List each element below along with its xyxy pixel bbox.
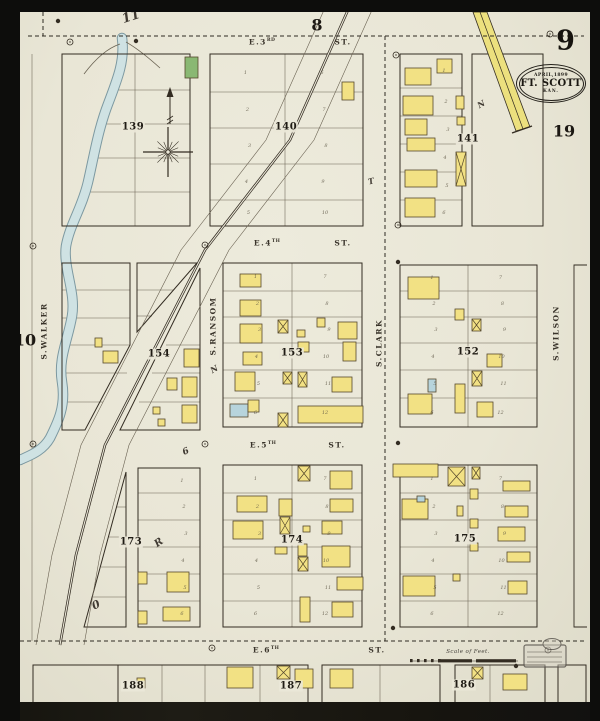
stamp-state: KAN. <box>543 89 559 94</box>
building-footprint <box>248 400 259 412</box>
scale-bar-segment <box>476 659 516 662</box>
outbuilding-crosshatch <box>283 372 292 384</box>
building-rect <box>457 117 465 125</box>
received-stamp-oval <box>543 639 561 650</box>
building-footprint <box>457 506 463 516</box>
building-footprint <box>167 378 177 390</box>
hydrant-dot <box>134 39 138 43</box>
building-rect <box>487 354 502 367</box>
building-footprint <box>297 330 305 337</box>
photo-border-left <box>0 0 20 721</box>
building-footprint <box>405 68 431 85</box>
building-footprint <box>275 547 287 554</box>
building-rect <box>405 119 427 135</box>
building-rect <box>503 674 527 690</box>
block-outline <box>223 263 362 427</box>
building-rect <box>498 527 525 541</box>
building-rect <box>417 496 425 502</box>
building-rect <box>185 57 198 78</box>
map-canvas <box>0 0 600 721</box>
building-footprint <box>503 481 530 491</box>
building-rect <box>167 572 189 592</box>
building-rect <box>455 309 464 320</box>
building-rect <box>470 543 478 551</box>
survey-circle-center <box>395 54 396 55</box>
building-rect <box>505 506 528 517</box>
survey-circle-center <box>549 33 550 34</box>
building-rect <box>408 394 432 414</box>
building-footprint <box>240 324 262 343</box>
building-footprint <box>470 489 478 499</box>
building-footprint <box>233 521 263 539</box>
building-rect <box>403 96 433 115</box>
railroad-band-centerline <box>480 12 523 129</box>
building-footprint <box>230 404 248 417</box>
outbuilding-crosshatch <box>298 466 310 481</box>
building-rect <box>137 678 145 688</box>
building-rect <box>343 342 356 361</box>
building-rect <box>138 572 147 584</box>
building-footprint <box>235 372 255 391</box>
building-footprint <box>137 678 145 688</box>
building-footprint <box>322 546 350 567</box>
building-footprint <box>330 499 353 512</box>
building-footprint <box>455 384 465 413</box>
building-rect <box>300 597 310 622</box>
building-rect <box>330 669 353 688</box>
building-footprint <box>298 544 307 556</box>
building-rect <box>295 669 313 688</box>
building-rect <box>403 576 435 596</box>
survey-circle-center <box>204 443 205 444</box>
building-footprint <box>505 506 528 517</box>
stamp-city: FT. SCOTT <box>520 78 581 90</box>
outbuilding-crosshatch <box>472 667 483 679</box>
compass-rose-icon <box>143 87 193 177</box>
building-footprint <box>300 597 310 622</box>
building-footprint <box>330 669 353 688</box>
building-footprint <box>405 119 427 135</box>
building-rect <box>457 506 463 516</box>
building-rect <box>298 406 363 423</box>
building-footprint <box>182 405 197 423</box>
building-footprint <box>455 309 464 320</box>
block-outline <box>33 665 118 704</box>
outbuilding-crosshatch <box>280 517 290 534</box>
building-footprint <box>437 59 452 73</box>
scale-bar-segment <box>438 659 472 662</box>
outbuilding-crosshatch <box>278 413 288 427</box>
block-outline <box>138 468 200 627</box>
building-rect <box>138 611 147 624</box>
scale-tick <box>410 659 413 662</box>
building-rect <box>298 544 307 556</box>
compass-hub <box>166 150 170 154</box>
outbuilding-crosshatch <box>448 467 465 486</box>
building-footprint <box>342 82 354 100</box>
margin-strip-outline <box>574 265 587 627</box>
building-footprint <box>322 521 342 534</box>
building-rect <box>243 352 262 365</box>
building-rect <box>240 300 261 316</box>
building-rect <box>158 419 165 426</box>
building-footprint <box>158 419 165 426</box>
building-footprint <box>408 277 439 299</box>
building-footprint <box>279 499 292 516</box>
building-footprint <box>182 377 197 397</box>
building-footprint <box>405 170 437 187</box>
building-rect <box>470 489 478 499</box>
building-footprint <box>428 379 436 392</box>
building-rect <box>322 521 342 534</box>
block-outline <box>558 665 586 704</box>
building-rect <box>405 198 435 217</box>
survey-circle-center <box>69 41 70 42</box>
building-footprint <box>167 572 189 592</box>
survey-circle-center <box>32 443 33 444</box>
building-rect <box>455 384 465 413</box>
scale-tick <box>431 659 434 662</box>
ravine-flare-line <box>126 42 160 68</box>
building-rect <box>408 277 439 299</box>
building-rect <box>332 602 353 617</box>
building-footprint <box>508 581 527 594</box>
building-rect <box>182 405 197 423</box>
building-rect <box>332 377 352 392</box>
hydrant-dot <box>396 260 400 264</box>
building-footprint <box>503 674 527 690</box>
outbuilding-crosshatch <box>472 467 480 479</box>
building-rect <box>184 349 199 367</box>
building-footprint <box>138 572 147 584</box>
building-rect <box>240 324 262 343</box>
survey-circle-center <box>397 224 398 225</box>
building-footprint <box>498 527 525 541</box>
building-rect <box>330 471 352 489</box>
received-stamp-box <box>524 645 566 667</box>
building-footprint <box>453 574 460 581</box>
building-footprint <box>403 96 433 115</box>
building-rect <box>297 330 305 337</box>
building-footprint <box>184 349 199 367</box>
stamp-date: APRIL,1899 <box>534 73 568 78</box>
building-footprint <box>337 577 363 590</box>
building-footprint <box>237 496 267 512</box>
building-rect <box>437 59 452 73</box>
scale-bar <box>410 659 518 662</box>
building-footprint <box>470 543 478 551</box>
building-rect <box>470 519 478 528</box>
survey-circle-center <box>32 245 33 246</box>
building-footprint <box>332 602 353 617</box>
building-footprint <box>487 354 502 367</box>
outbuilding-crosshatch <box>277 666 290 679</box>
building-footprint <box>408 394 432 414</box>
building-rect <box>507 552 530 562</box>
scale-tick <box>417 659 420 662</box>
building-rect <box>453 574 460 581</box>
building-footprint <box>185 57 198 78</box>
building-rect <box>275 547 287 554</box>
building-rect <box>153 407 160 414</box>
building-footprint <box>477 402 493 417</box>
building-footprint <box>405 198 435 217</box>
outbuilding-crosshatch <box>456 152 466 186</box>
building-footprint <box>295 669 313 688</box>
building-rect <box>338 322 357 339</box>
scale-tick <box>424 659 427 662</box>
building-footprint <box>338 322 357 339</box>
creek-water <box>20 38 123 460</box>
hydrant-dot <box>514 664 518 668</box>
outbuilding-crosshatch <box>298 557 308 571</box>
building-footprint <box>403 576 435 596</box>
ft-scott-oval-stamp: APRIL,1899 FT. SCOTT KAN. <box>516 64 586 103</box>
building-rect <box>163 607 190 621</box>
building-footprint <box>343 342 356 361</box>
building-footprint <box>507 552 530 562</box>
building-footprint <box>243 352 262 365</box>
building-footprint <box>393 464 438 477</box>
building-rect <box>456 96 464 109</box>
outbuilding-crosshatch <box>298 372 307 387</box>
building-footprint <box>95 338 102 347</box>
building-rect <box>330 499 353 512</box>
outbuilding-crosshatch <box>472 319 481 331</box>
building-rect <box>235 372 255 391</box>
building-footprint <box>317 318 325 327</box>
building-rect <box>342 82 354 100</box>
building-rect <box>405 68 431 85</box>
building-footprint <box>303 526 310 532</box>
building-footprint <box>332 377 352 392</box>
building-rect <box>230 404 248 417</box>
block-outline <box>455 665 545 704</box>
survey-circle-center <box>211 647 212 648</box>
building-rect <box>337 577 363 590</box>
building-rect <box>477 402 493 417</box>
survey-circle-center <box>204 244 205 245</box>
building-footprint <box>298 342 309 352</box>
building-rect <box>167 378 177 390</box>
building-footprint <box>163 607 190 621</box>
building-rect <box>322 546 350 567</box>
hydrant-dot <box>396 441 400 445</box>
building-rect <box>393 464 438 477</box>
building-rect <box>303 526 310 532</box>
building-rect <box>237 496 267 512</box>
north-arrow-head <box>167 87 174 97</box>
building-footprint <box>330 471 352 489</box>
building-footprint <box>457 117 465 125</box>
building-rect <box>407 138 435 151</box>
building-footprint <box>456 96 464 109</box>
building-footprint <box>240 300 261 316</box>
building-rect <box>233 521 263 539</box>
building-rect <box>508 581 527 594</box>
hydrant-dot <box>391 626 395 630</box>
building-rect <box>428 379 436 392</box>
building-footprint <box>298 406 363 423</box>
photo-border-right <box>590 0 600 721</box>
sanborn-map-sheet: 9 8 19 10 Scale of Feet. 123456789101234… <box>0 0 600 721</box>
photo-border-top <box>0 0 600 12</box>
received-stamp <box>524 639 566 668</box>
building-rect <box>317 318 325 327</box>
building-footprint <box>103 351 118 363</box>
building-footprint <box>138 611 147 624</box>
photo-border-bottom <box>0 702 600 721</box>
building-rect <box>95 338 102 347</box>
building-rect <box>182 377 197 397</box>
building-footprint <box>227 667 253 688</box>
building-rect <box>103 351 118 363</box>
outbuilding-crosshatch <box>472 371 482 386</box>
building-rect <box>227 667 253 688</box>
building-footprint <box>240 274 261 287</box>
building-rect <box>298 342 309 352</box>
building-footprint <box>417 496 425 502</box>
hydrant-dot <box>56 19 60 23</box>
building-rect <box>248 400 259 412</box>
creek <box>20 38 160 460</box>
building-rect <box>503 481 530 491</box>
building-footprint <box>470 519 478 528</box>
building-rect <box>240 274 261 287</box>
outbuilding-crosshatch <box>278 320 288 333</box>
building-footprint <box>153 407 160 414</box>
building-rect <box>279 499 292 516</box>
building-footprint <box>407 138 435 151</box>
building-rect <box>405 170 437 187</box>
block-outline-polygon <box>84 472 126 627</box>
